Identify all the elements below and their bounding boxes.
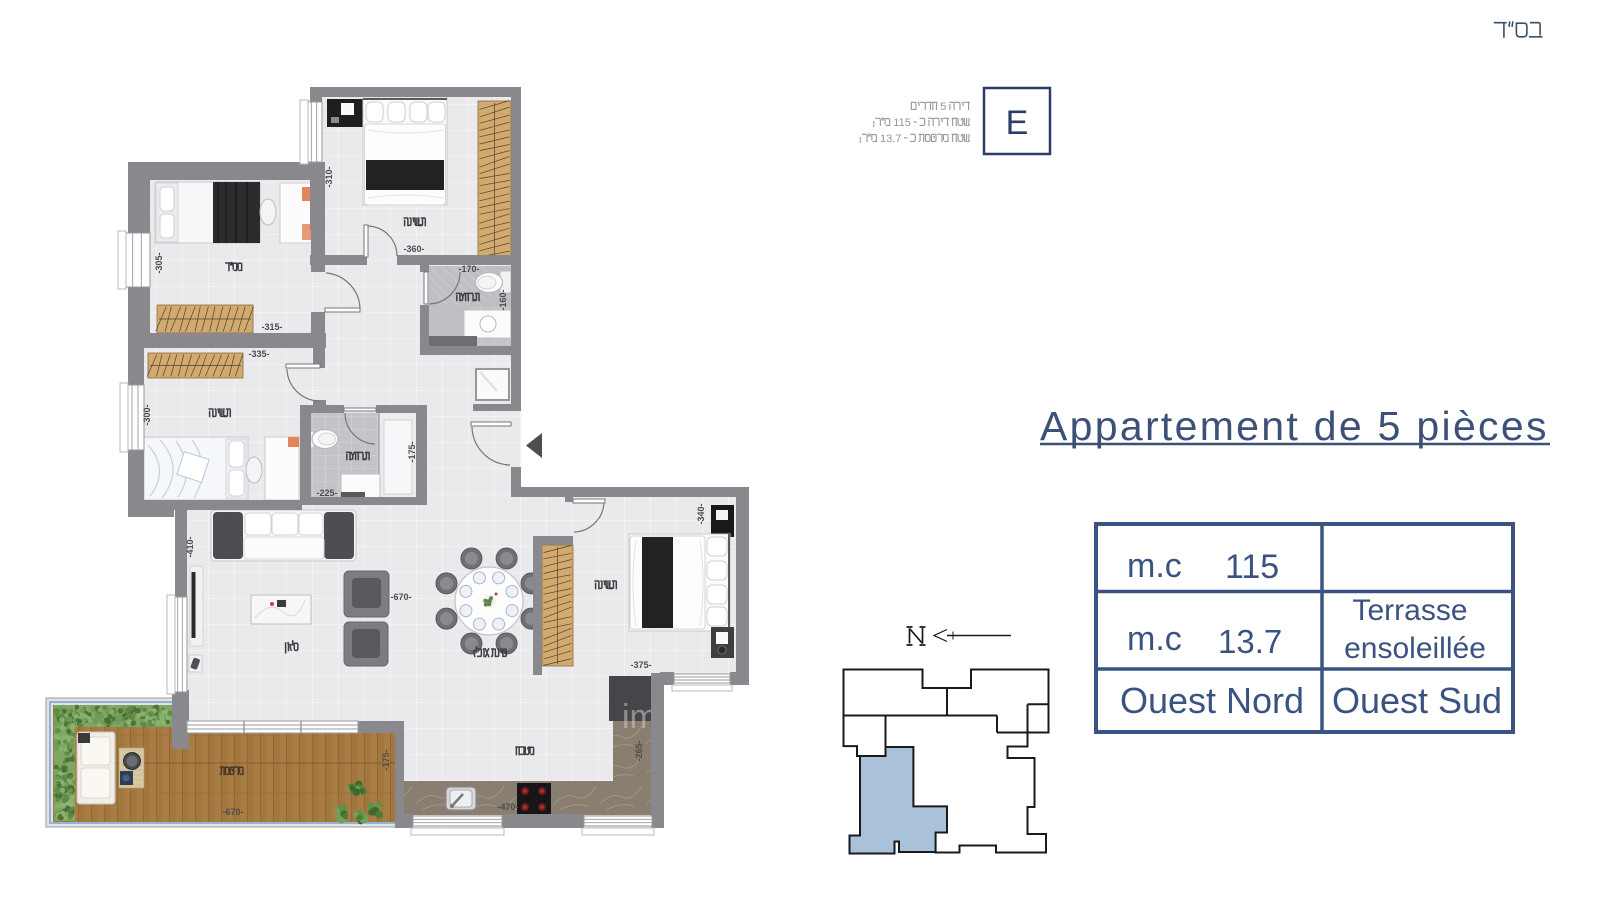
svg-text:-410-: -410- — [185, 536, 195, 557]
svg-text:-360-: -360- — [403, 244, 424, 254]
svg-text:-305-: -305- — [154, 252, 164, 273]
svg-text:-175-: -175- — [407, 441, 417, 462]
svg-text:Appartement de 5 pièces: Appartement de 5 pièces — [1040, 403, 1549, 449]
svg-text:5: 5 — [940, 101, 946, 113]
svg-text:115: 115 — [893, 117, 911, 129]
svg-text:-670-: -670- — [390, 592, 411, 602]
svg-text:ensoleillée: ensoleillée — [1344, 632, 1486, 665]
svg-text:-175-: -175- — [381, 749, 391, 770]
svg-text:-315-: -315- — [261, 322, 282, 332]
svg-text:-160-: -160- — [498, 289, 508, 310]
svg-text:Ouest Sud: Ouest Sud — [1332, 680, 1502, 721]
svg-text:Ouest Nord: Ouest Nord — [1120, 680, 1304, 721]
svg-text:-170-: -170- — [458, 264, 479, 274]
svg-text:13.7: 13.7 — [1218, 623, 1282, 660]
svg-text:115: 115 — [1225, 548, 1279, 586]
svg-text:m.c: m.c — [1127, 547, 1182, 585]
svg-text:-375-: -375- — [630, 660, 651, 670]
svg-text:-340-: -340- — [696, 503, 706, 524]
svg-text:-310-: -310- — [324, 166, 334, 187]
svg-text:-300-: -300- — [142, 404, 152, 425]
svg-text:-670-: -670- — [222, 807, 243, 817]
svg-text:E: E — [1006, 104, 1029, 142]
svg-text:-265-: -265- — [634, 740, 644, 761]
svg-text:Terrasse: Terrasse — [1352, 594, 1467, 627]
svg-text:-470-: -470- — [497, 802, 518, 812]
svg-text:-225-: -225- — [316, 488, 337, 498]
svg-text:m.c: m.c — [1127, 620, 1182, 658]
svg-text:-335-: -335- — [248, 349, 269, 359]
svg-text:13.7: 13.7 — [880, 133, 901, 145]
